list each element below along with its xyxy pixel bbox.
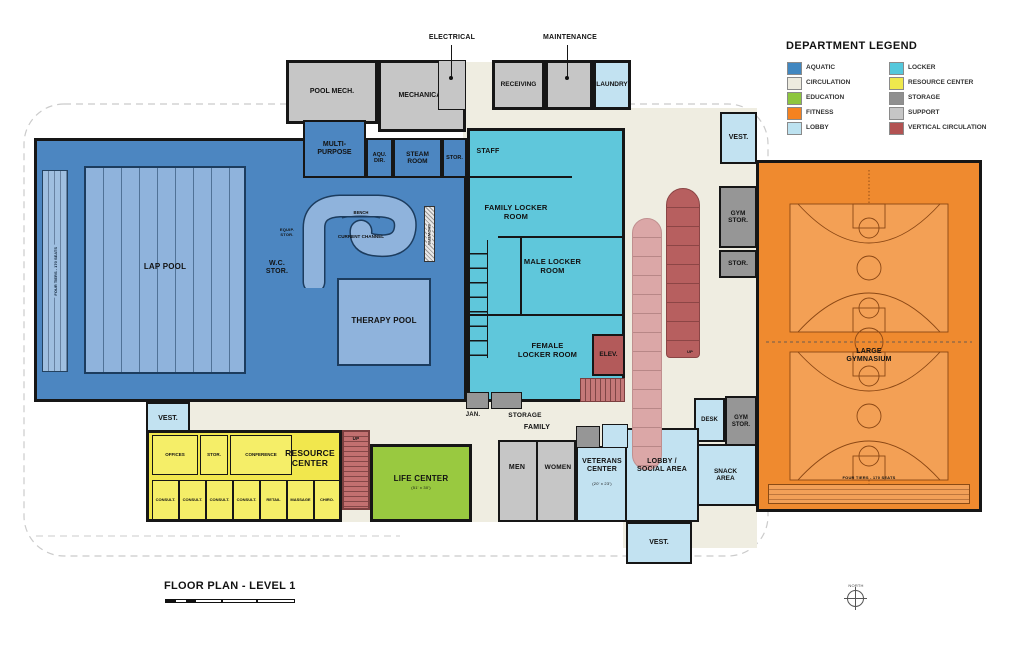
pool-mech-label: POOL MECH. (310, 88, 354, 96)
restroom-divider-wall (536, 440, 538, 522)
pool-bleachers-label: FOUR TIERS - 170 SEATS (53, 245, 58, 298)
legend-swatch-lobby (787, 122, 802, 135)
room-mini-lobby (602, 424, 628, 448)
room-retail: RETAIL (260, 480, 287, 520)
resource-center-label: RESOURCE CENTER (280, 448, 340, 468)
male-locker-label: MALE LOCKER ROOM (505, 258, 600, 276)
veterans-center-label: VETERANS CENTER (578, 458, 626, 475)
legend-title: DEPARTMENT LEGEND (786, 40, 1006, 53)
consult-3-label: CONSULT. (210, 498, 230, 503)
legend-swatch-education (787, 92, 802, 105)
legend-swatch-vertical-circulation (889, 122, 904, 135)
aqu-dir-label: AQU. DIR. (373, 152, 387, 165)
room-jan-closet (466, 392, 489, 409)
desk-label: DESK (701, 417, 718, 424)
electrical-annotation: ELECTRICAL (414, 34, 490, 42)
chiro-label: CHIRO. (320, 498, 334, 503)
room-consult-4: CONSULT. (233, 480, 260, 520)
current-channel-graphic: BENCH CURRENT CHANNEL (292, 192, 432, 288)
maintenance-annotation: MAINTENANCE (532, 34, 608, 42)
jan-label: JAN. (456, 412, 490, 419)
room-resource-stor: STOR. (200, 435, 228, 475)
showers-strip: SHOWERS (424, 206, 435, 262)
gym-bleachers-label: FOUR TIERS - 170 SEATS (799, 476, 939, 481)
ramp-up-label: UP (680, 350, 700, 355)
pool-bleachers: FOUR TIERS - 170 SEATS (42, 170, 68, 372)
conference-label: CONFERENCE (245, 452, 277, 457)
room-pool-stor: STOR. (442, 138, 467, 178)
veterans-center-dim: (20' x 23') (578, 482, 626, 487)
electrical-leader-dot (449, 76, 453, 80)
north-label: NORTH (838, 584, 874, 589)
offices-label: OFFICES (165, 452, 185, 457)
room-chiro: CHIRO. (314, 480, 340, 520)
elevator-label: ELEV. (599, 351, 617, 358)
legend-swatch-resource-center (889, 77, 904, 90)
lobby-social-label: LOBBY / SOCIAL AREA (627, 458, 697, 475)
room-multi-purpose: MULTI- PURPOSE (303, 120, 366, 178)
legend-label-resource-center: RESOURCE CENTER (908, 79, 1024, 86)
vestibule-bottom-label: VEST. (649, 539, 668, 547)
family-locker-label: FAMILY LOCKER ROOM (470, 204, 562, 222)
stair-by-elevator (580, 378, 625, 402)
family-corridor-label: FAMILY (510, 424, 564, 432)
room-steam-room: STEAM ROOM (393, 138, 442, 178)
gym-stor-top-label: GYM STOR. (728, 210, 748, 225)
legend-swatch-circulation (787, 77, 802, 90)
consult-2-label: CONSULT. (183, 498, 203, 503)
vestibule-left-label: VEST. (158, 415, 177, 423)
legend-swatch-aquatic (787, 62, 802, 75)
room-offices: OFFICES (152, 435, 198, 475)
room-mini-stor (576, 426, 600, 448)
stor-right-label: STOR. (728, 260, 748, 267)
room-stor-right: STOR. (719, 250, 757, 278)
female-locker-label: FEMALE LOCKER ROOM (500, 342, 595, 360)
locker-wall-2 (498, 236, 625, 238)
electrical-leader-line (451, 45, 452, 77)
consult-1-label: CONSULT. (156, 498, 176, 503)
legend-swatch-fitness (787, 107, 802, 120)
bench-label: BENCH (354, 210, 369, 215)
multi-purpose-label: MULTI- PURPOSE (317, 141, 351, 157)
showers-label: SHOWERS (427, 224, 432, 245)
locker-shower-stalls (470, 240, 488, 358)
room-pool-mech: POOL MECH. (286, 60, 378, 124)
room-gym-stor-top: GYM STOR. (719, 186, 757, 248)
stair-up-label: UP (344, 436, 368, 441)
room-receiving: RECEIVING (492, 60, 545, 110)
legend-swatch-storage (889, 92, 904, 105)
retail-label: RETAIL (266, 498, 280, 503)
legend-label-vertical-circulation: VERTICAL CIRCULATION (908, 124, 1024, 131)
women-label: WOMEN (538, 464, 578, 472)
room-massage: MASSAGE (287, 480, 314, 520)
room-electrical (438, 60, 466, 110)
room-consult-1: CONSULT. (152, 480, 179, 520)
room-laundry: LAUNDRY (593, 60, 631, 110)
life-center-dim: (51' x 30') (372, 486, 470, 491)
snack-area-label: SNACK AREA (714, 468, 737, 483)
basketball-courts-graphic (760, 164, 978, 508)
staff-label: STAFF (468, 148, 508, 156)
scale-bar (165, 599, 295, 603)
room-vestibule-top: VEST. (720, 112, 757, 164)
consult-4-label: CONSULT. (237, 498, 257, 503)
steam-room-label: STEAM ROOM (406, 151, 429, 166)
pool-stor-label: STOR. (446, 155, 463, 161)
ramp-dark (666, 188, 700, 358)
massage-label: MASSAGE (290, 498, 310, 503)
maintenance-leader-line (567, 45, 568, 77)
life-center-label: LIFE CENTER (372, 474, 470, 483)
room-snack-area: SNACK AREA (694, 444, 757, 506)
legend-swatch-locker (889, 62, 904, 75)
receiving-label: RECEIVING (501, 81, 537, 88)
locker-wall-1 (467, 176, 572, 178)
page-title: FLOOR PLAN - LEVEL 1 (164, 580, 404, 593)
ramp-light (632, 218, 662, 470)
room-gym-stor-bottom: GYM STOR. (725, 396, 757, 448)
large-gym-label: LARGE GYMNASIUM (799, 348, 939, 365)
room-consult-2: CONSULT. (179, 480, 206, 520)
legend-label-storage: STORAGE (908, 94, 1024, 101)
lap-pool-label: LAP POOL (120, 262, 210, 271)
room-maintenance (545, 60, 593, 110)
legend-label-locker: LOCKER (908, 64, 1024, 71)
gym-bleachers (768, 484, 970, 504)
current-channel-label: CURRENT CHANNEL (338, 234, 384, 239)
maintenance-leader-dot (565, 76, 569, 80)
room-elevator: ELEV. (592, 334, 625, 376)
equip-stor-label: EQUIP. STOR. (270, 228, 304, 237)
laundry-label: LAUNDRY (596, 81, 628, 88)
legend-label-support: SUPPORT (908, 109, 1024, 116)
therapy-pool-label: THERAPY POOL (340, 316, 428, 325)
resource-stor-label: STOR. (207, 452, 221, 457)
legend-swatch-support (889, 107, 904, 120)
men-label: MEN (498, 464, 536, 472)
room-vestibule-bottom: VEST. (626, 522, 692, 564)
locker-wall-3 (467, 314, 625, 316)
storage-label: STORAGE (498, 412, 552, 420)
room-aqu-dir: AQU. DIR. (366, 138, 393, 178)
wc-stor-label: W.C. STOR. (252, 260, 302, 277)
room-consult-3: CONSULT. (206, 480, 233, 520)
locker-wall-4 (520, 238, 522, 316)
vestibule-top-label: VEST. (729, 134, 748, 142)
compass-vertical-line (855, 587, 856, 610)
floor-plan-canvas: POOL MECH. MECHANICAL RECEIVING LAUNDRY … (0, 0, 1024, 652)
room-storage-closet (491, 392, 522, 409)
stair-resource (342, 430, 370, 510)
gym-stor-bottom-label: GYM STOR. (732, 415, 750, 429)
